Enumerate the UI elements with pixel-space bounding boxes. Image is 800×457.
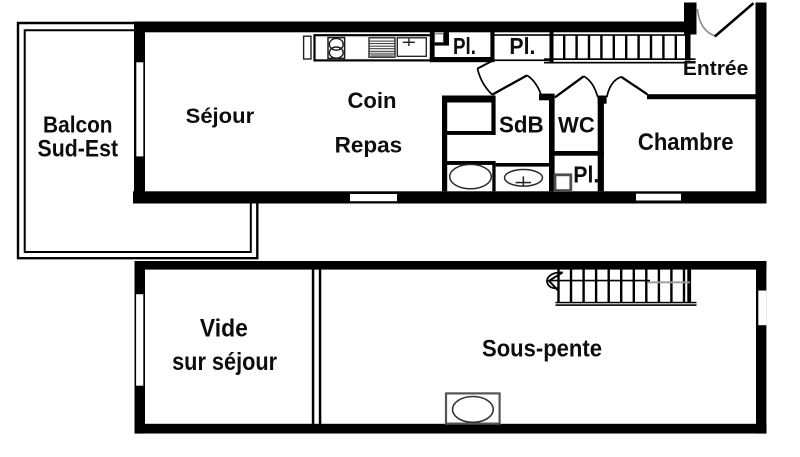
svg-text:Sous-pente: Sous-pente <box>482 336 602 363</box>
svg-text:Entrée: Entrée <box>683 58 748 80</box>
svg-text:Séjour: Séjour <box>186 105 255 128</box>
svg-text:Pl.: Pl. <box>509 33 535 59</box>
svg-text:WC: WC <box>558 112 595 137</box>
svg-text:Coin: Coin <box>348 88 397 113</box>
svg-text:sur séjour: sur séjour <box>172 348 277 376</box>
svg-text:Pl.: Pl. <box>573 162 599 188</box>
svg-text:Sud-Est: Sud-Est <box>38 136 119 163</box>
svg-text:Chambre: Chambre <box>638 129 734 156</box>
svg-text:Pl.: Pl. <box>453 33 476 59</box>
svg-text:Balcon: Balcon <box>43 112 113 138</box>
svg-text:Repas: Repas <box>335 132 403 157</box>
svg-text:SdB: SdB <box>499 112 544 138</box>
svg-text:Vide: Vide <box>200 315 248 343</box>
